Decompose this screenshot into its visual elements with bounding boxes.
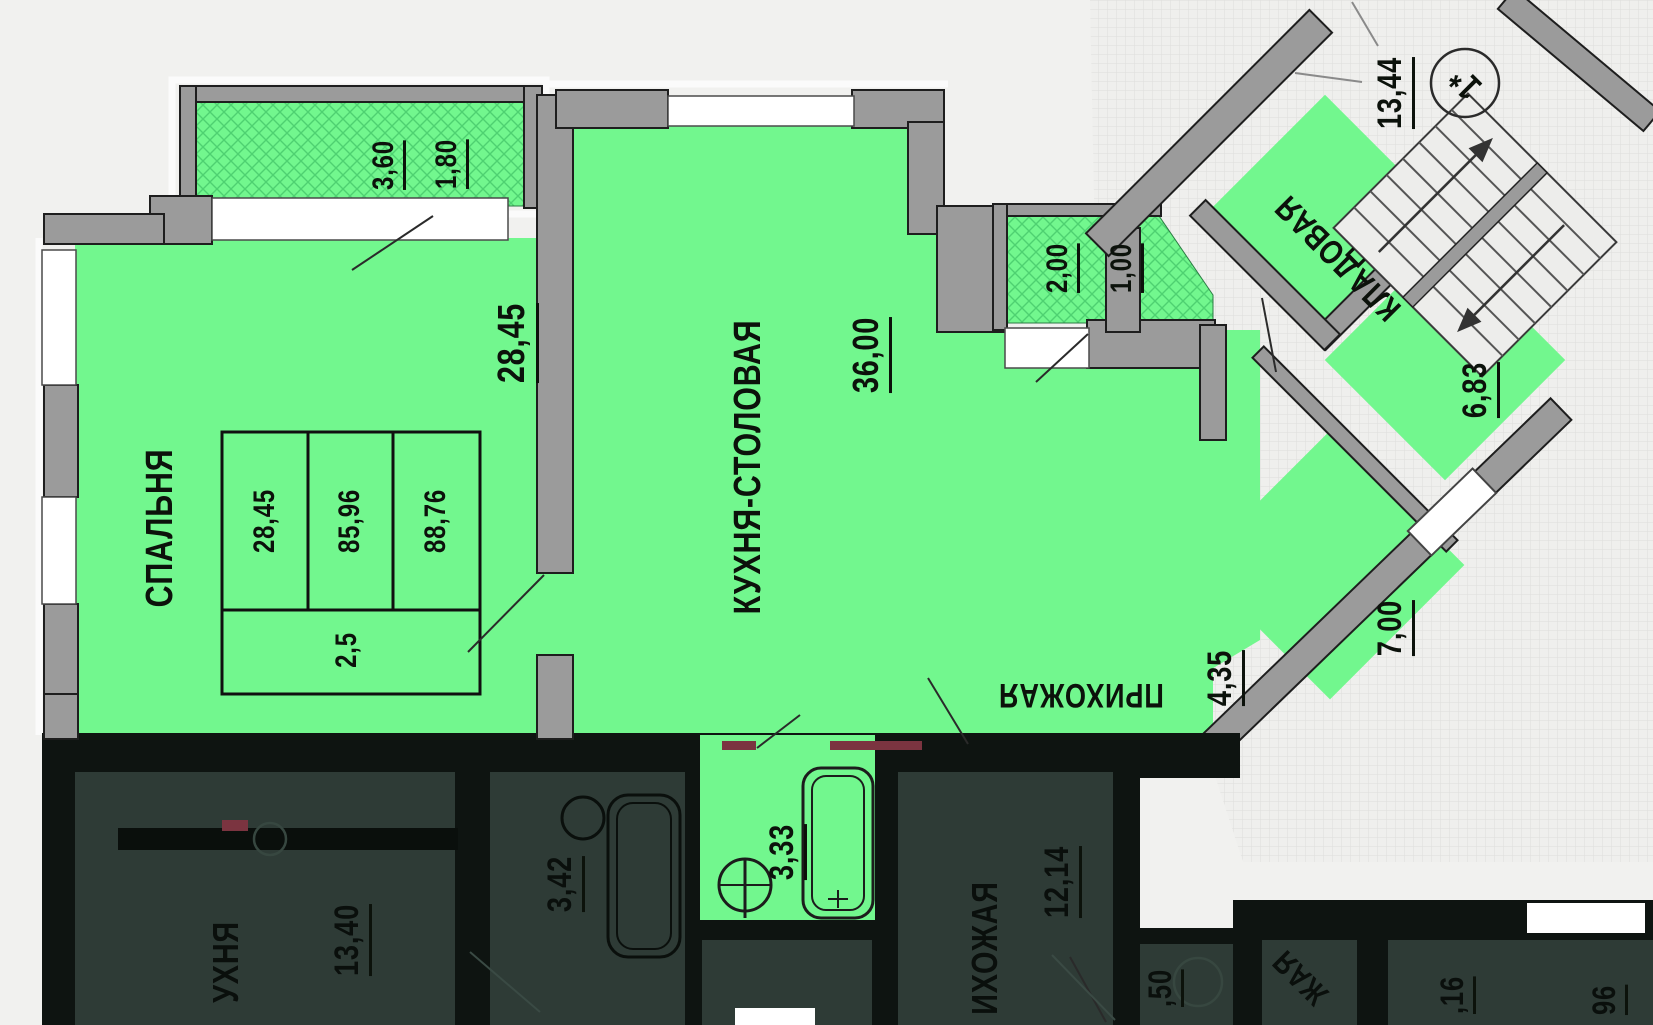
room-label-bedroom: СПАЛЬНЯ [141, 449, 179, 608]
stamp-cell-living: 28,45 [250, 489, 280, 553]
area-label-hallway: 4,35 [1203, 650, 1237, 706]
stamp-cell-area: 85,96 [335, 489, 365, 553]
balcony2-dim-top: 2,00 [1043, 243, 1073, 293]
stamp-cell-total: 88,76 [421, 489, 451, 553]
dim-area-corridor: ,50 [1144, 969, 1176, 1007]
stove-mark [222, 820, 248, 831]
dim-room-label-hall: ИХОЖАЯ [967, 881, 1003, 1015]
floor-plan: СПАЛЬНЯ 28,45 28,45 85,96 88,76 2,5 3,60… [0, 0, 1653, 1025]
balcony1-dim-bottom: 1,80 [432, 139, 462, 189]
door-opening [1527, 903, 1645, 933]
room-label-hallway: ПРИХОЖАЯ [998, 678, 1164, 712]
stamp-ceiling-height: 2,5 [332, 632, 362, 668]
area-label-storage: 6,83 [1458, 362, 1492, 418]
balcony-1 [190, 98, 530, 206]
dim-area-kitchen: 13,40 [330, 904, 364, 976]
door-opening [735, 1008, 815, 1025]
stair-dimension: 13,44 [1373, 57, 1407, 129]
area-label-bedroom: 28,45 [493, 303, 531, 383]
dim-room-label-kitchen: УХНЯ [208, 921, 244, 1003]
room-label-kitchen: КУХНЯ-СТОЛОВАЯ [729, 320, 767, 615]
dim-partial-number-2: 96 [1588, 985, 1620, 1015]
dim-area-bath: 3,42 [543, 856, 577, 912]
area-label-bathroom: 3,33 [765, 824, 799, 880]
area-label-kitchen: 36,00 [848, 317, 884, 393]
balcony2-dim-bottom: 1,00 [1107, 243, 1137, 293]
balcony1-dim-top: 3,60 [369, 140, 399, 190]
dim-area-hall: 12,14 [1040, 846, 1074, 918]
counter [118, 828, 458, 850]
area-label-hall2: 7,00 [1373, 600, 1407, 656]
dim-partial-number-1: ,16 [1436, 976, 1468, 1014]
wall [1113, 733, 1240, 778]
